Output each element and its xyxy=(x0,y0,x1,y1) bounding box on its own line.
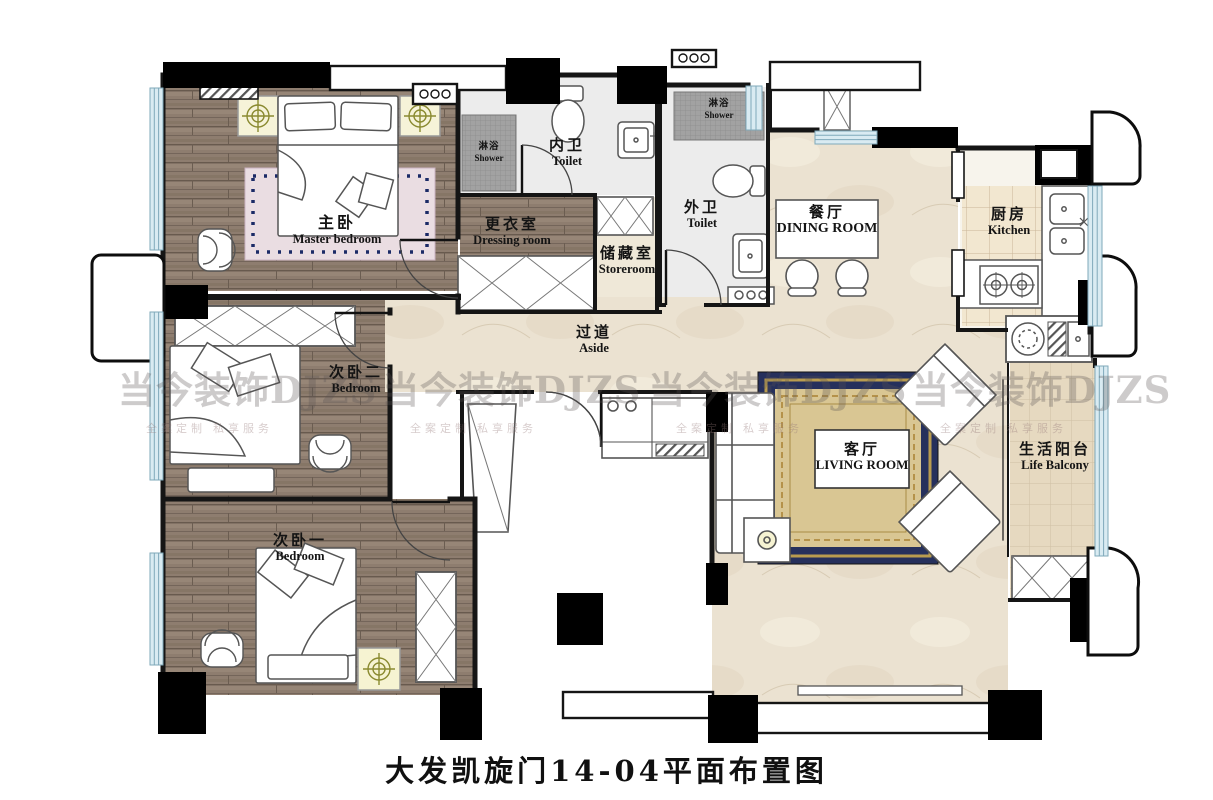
living-label-plate xyxy=(815,430,909,488)
drawing-title: 大发凯旋门14-04平面布置图 xyxy=(0,748,1213,790)
label-plate-layer xyxy=(0,0,1213,800)
floor-plan: 当今装饰DJZS 全案定制 私享服务 当今装饰DJZS 全案定制 私享服务 当今… xyxy=(0,0,1213,800)
